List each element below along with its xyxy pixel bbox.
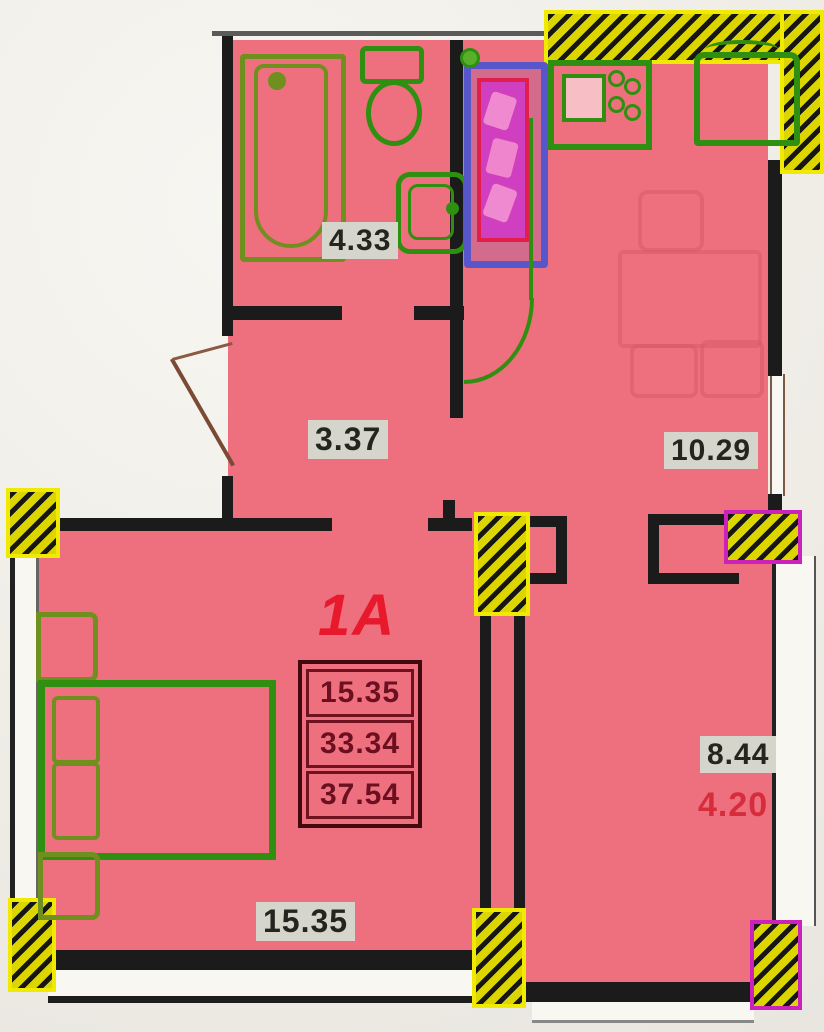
balcony-railing-right (772, 556, 816, 926)
stove-burner (608, 70, 625, 87)
living-room-area-label: 15.35 (256, 902, 355, 941)
insulated-column-left-top (10, 492, 56, 554)
floor-plan-scan: 4.33 3.37 10.29 1A 15.35 33.34 37.54 15.… (0, 0, 824, 1032)
kitchen-sink-basin (562, 74, 606, 122)
wall-left-upper (222, 36, 233, 336)
closet-dot (460, 48, 480, 68)
wall-bracket-kitchen (648, 514, 739, 584)
window-bottom-balcony (532, 1000, 754, 1023)
area-table-row: 15.35 (306, 669, 414, 717)
window-right-kitchen (770, 374, 785, 496)
wall-bath-divider-left (222, 306, 342, 320)
wall-kitchen-right (768, 160, 782, 376)
closet-item (482, 183, 518, 224)
stove-burner (608, 96, 625, 113)
entrance-door-leaf (170, 358, 235, 467)
floor-wall-gap (491, 612, 515, 914)
insulated-column-bottom-right (754, 924, 798, 1006)
wall-balcony-bottom (522, 982, 756, 1002)
bathtub-inner (254, 64, 328, 248)
sink-drain-dot (446, 202, 459, 215)
bathtub-drain (268, 72, 286, 90)
balcony-area-label: 8.44 (700, 736, 776, 773)
unit-label: 1A (318, 582, 396, 649)
insulated-column-bottom-mid (476, 912, 522, 1004)
wall-double-left (480, 608, 491, 916)
dining-chair (700, 340, 764, 398)
bathroom-area-label: 4.33 (322, 222, 398, 259)
nightstand-bottom (38, 852, 100, 920)
wall-hall-living-divider (50, 518, 332, 531)
hallway-area-label: 3.37 (308, 420, 388, 459)
closet-item (482, 91, 517, 131)
pillow (52, 696, 100, 764)
wall-outer-top-thin (212, 31, 554, 36)
stove-burner (624, 78, 641, 95)
area-table-row: 37.54 (306, 771, 414, 819)
kitchen-area-label: 10.29 (664, 432, 758, 469)
fridge-icon (694, 52, 800, 146)
area-table-row: 33.34 (306, 720, 414, 768)
entrance-door-swing (172, 342, 233, 361)
stove-burner (624, 104, 641, 121)
toilet-tank-icon (360, 46, 424, 84)
wall-double-right (514, 608, 525, 916)
window-bottom-living (48, 968, 478, 1003)
balcony-reduced-area-label: 4.20 (698, 786, 768, 825)
kitchen-door-leaf (529, 118, 533, 300)
toilet-bowl-icon (366, 80, 422, 146)
insulated-column-mid (478, 516, 526, 612)
window-left-living (10, 556, 39, 902)
insulated-column-right (728, 514, 798, 560)
dining-chair (638, 190, 704, 252)
nightstand-top (36, 612, 98, 682)
wall-living-bottom (48, 950, 478, 970)
area-summary-table: 15.35 33.34 37.54 (298, 660, 422, 828)
wall-left-mid (222, 476, 233, 518)
closet-inner (477, 78, 529, 242)
wall-divider-t-stub (443, 500, 455, 520)
fridge-handle-arc (706, 40, 778, 58)
dining-chair (630, 344, 698, 398)
closet-item (485, 137, 519, 178)
dining-table (618, 250, 762, 348)
pillow (52, 762, 100, 840)
